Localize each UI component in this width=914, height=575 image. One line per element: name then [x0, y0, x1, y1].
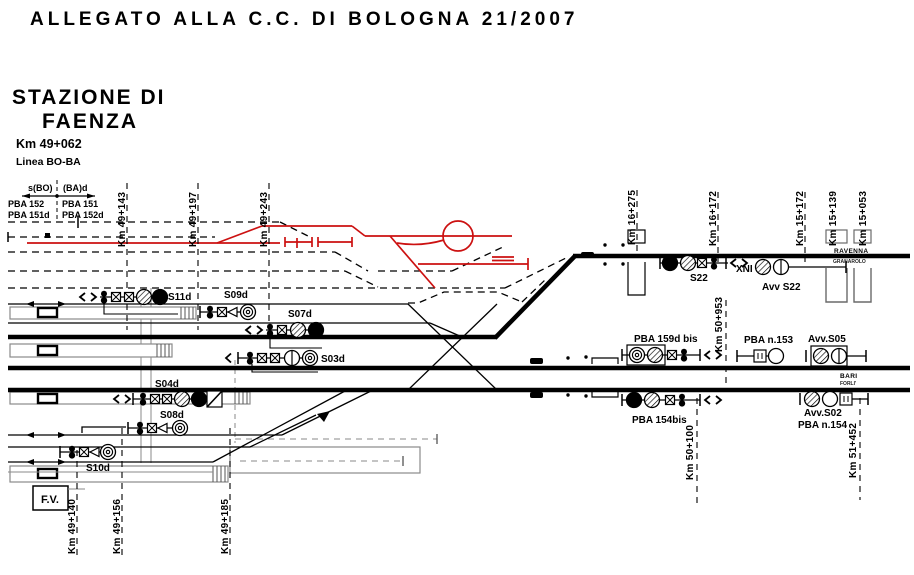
station-scheme-svg: ALLEGATO ALLA C.C. DI BOLOGNA 21/2007 ST… — [0, 0, 914, 575]
station-km: Km 49+062 — [16, 137, 82, 151]
station-name-line1: STAZIONE DI — [12, 86, 165, 109]
signal-label: S11d — [168, 292, 191, 303]
km-marker-label: Km 49+185 — [220, 499, 231, 554]
signal-label: S09d — [224, 290, 248, 301]
red-line-marker — [45, 233, 50, 238]
km-marker-label: Km 16+172 — [708, 191, 719, 246]
pba-left-row2: PBA 151d — [8, 210, 50, 220]
station-name-line2: FAENZA — [42, 110, 138, 133]
signal-label: S08d — [160, 410, 184, 421]
signal-s08d: S08d — [128, 410, 188, 436]
signal-label: Avv.S02 — [804, 408, 842, 419]
signal-label: S10d — [86, 463, 110, 474]
direction-bari: BARI — [840, 373, 858, 380]
pba-right-row2: PBA 152d — [62, 210, 104, 220]
signal-pba-159d-bis: PBA 159d bis — [622, 334, 721, 365]
signal-s09d: S09d — [200, 290, 256, 320]
km-marker-label: Km 49+140 — [67, 499, 78, 554]
km-marker-label: Km 49+243 — [259, 192, 270, 247]
signal-label: S03d — [321, 354, 345, 365]
signal-pba-154bis: PBA 154bis — [622, 393, 721, 427]
direction-ravenna-sub: GRANAROLO — [833, 259, 866, 265]
signal-label: PBA n.154 — [798, 420, 848, 431]
signal-s22: S22 — [660, 256, 747, 285]
km-marker-label: Km 15+172 — [795, 191, 806, 246]
km-marker-label: Km 50+100 — [685, 425, 696, 480]
pba-dir-right: (BA)d — [63, 183, 88, 193]
platform-shelters — [38, 308, 57, 478]
platform-dashed-edges — [235, 439, 437, 461]
secondary-tracks — [8, 304, 497, 462]
km-marker-label: Km 49+143 — [117, 192, 128, 247]
direction-bari-sub: FORLI' — [840, 381, 856, 387]
signal-label: Avv.S05 — [808, 334, 846, 345]
signal-label: S04d — [155, 379, 179, 390]
signal-avv-s22: XNI Avv S22 — [736, 260, 846, 294]
arrow-right-icon — [87, 194, 95, 199]
station-line: Linea BO-BA — [16, 156, 81, 168]
km-marker-label: Km 49+197 — [188, 192, 199, 247]
document-title: ALLEGATO ALLA C.C. DI BOLOGNA 21/2007 — [30, 9, 578, 30]
arrow-left-icon — [22, 194, 30, 199]
km-marker-label: Km 50+953 — [714, 297, 725, 352]
signal-pba-n153: PBA n.153 — [737, 335, 794, 364]
direction-ravenna: RAVENNA — [834, 248, 868, 255]
pba-dir-left: s(BO) — [28, 183, 53, 193]
signal-label: Avv S22 — [762, 282, 801, 293]
signal-label: S22 — [690, 273, 708, 284]
km-marker-label: Km 15+139 — [828, 191, 839, 246]
station-building-label: F.V. — [41, 494, 59, 506]
removed-tracks-dashed — [8, 222, 566, 303]
pba-direction-block: s(BO) (BA)d PBA 152 PBA 151d PBA 151 PBA… — [8, 180, 104, 221]
pba-right-row1: PBA 151 — [62, 199, 98, 209]
signal-s07d: S07d — [246, 309, 324, 348]
station-header: STAZIONE DI FAENZA Km 49+062 Linea BO-BA — [12, 86, 165, 168]
modified-layout-red — [27, 221, 528, 288]
signal-label: PBA 154bis — [632, 415, 687, 426]
signal-avv-s05: Avv.S05 — [806, 334, 866, 366]
km-marker-label: Km 15+053 — [858, 191, 869, 246]
signal-label: PBA 159d bis — [634, 334, 698, 345]
km-marker-label: Km 49+156 — [112, 499, 123, 554]
pba-left-row1: PBA 152 — [8, 199, 44, 209]
track-diagram: ALLEGATO ALLA C.C. DI BOLOGNA 21/2007 ST… — [0, 0, 914, 575]
signal-label: PBA n.153 — [744, 335, 794, 346]
km-marker-label: Km 51+452 — [848, 423, 859, 478]
signal-label-xni: XNI — [736, 264, 753, 275]
km-marker-label: Km 16+275 — [627, 190, 638, 245]
signal-label: S07d — [288, 309, 312, 320]
